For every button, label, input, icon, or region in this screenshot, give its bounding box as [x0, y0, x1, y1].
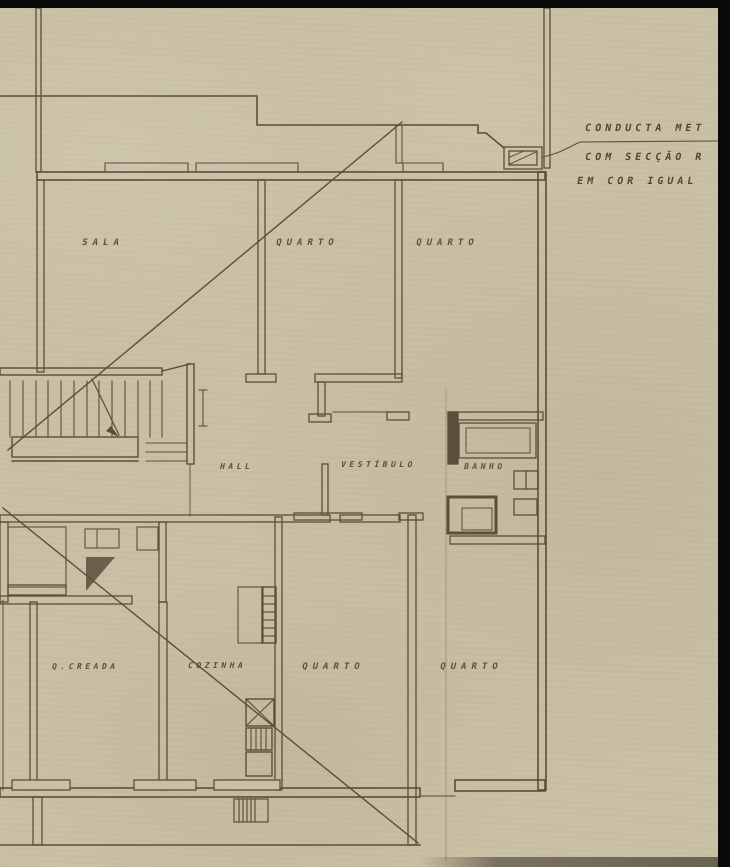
room-label-sala: SALA	[81, 238, 125, 248]
section-diagonals	[3, 122, 418, 843]
annotation-line-3: EM COR IGUAL	[576, 176, 698, 187]
annotation-line-2: COM SECÇÃO R	[584, 152, 706, 163]
room-label-vestibulo: VESTÍBULO	[340, 460, 417, 469]
duct-symbol	[504, 147, 542, 169]
room-label-quarto-bottom-1: QUARTO	[301, 662, 366, 672]
scan-border-top	[0, 0, 730, 8]
top-exterior-wall	[37, 163, 545, 180]
balcony-drain-box	[234, 799, 268, 822]
toilet	[514, 471, 538, 489]
sheet-edge-shadow	[420, 857, 730, 867]
parapet-outline	[0, 96, 504, 148]
quarto1-bottom-wall	[309, 374, 409, 422]
room-label-hall: HALL	[219, 462, 254, 471]
party-wall-left	[36, 8, 41, 172]
shower	[448, 497, 496, 533]
room-label-cozinha: COZINHA	[187, 661, 247, 670]
sink	[514, 499, 537, 515]
scan-border-right	[718, 0, 730, 867]
bathtub	[459, 423, 536, 458]
bottom-exterior-wall	[0, 780, 545, 845]
annotation-line-1: CONDUCTA MET	[584, 123, 706, 134]
lower-partition-walls	[3, 515, 416, 845]
lightwell	[0, 522, 66, 602]
room-label-quarto-top-1: QUARTO	[275, 238, 340, 248]
room-label-banho: BANHO	[463, 462, 507, 471]
room-label-quarto-bottom-2: QUARTO	[439, 662, 504, 672]
party-wall-right	[544, 8, 550, 168]
stair-direction-arrow	[92, 379, 119, 437]
blueprint-sheet: SALA QUARTO QUARTO HALL VESTÍBULO BANHO …	[0, 0, 730, 867]
vestibule-walls	[294, 464, 362, 520]
room-label-quarto-top-2: QUARTO	[415, 238, 480, 248]
room-label-q-creada: Q.CREADA	[51, 662, 119, 671]
wc-room	[0, 522, 166, 604]
lower-block-top-wall	[0, 513, 423, 522]
kitchen-fixtures	[238, 587, 276, 776]
staircase	[0, 364, 207, 516]
